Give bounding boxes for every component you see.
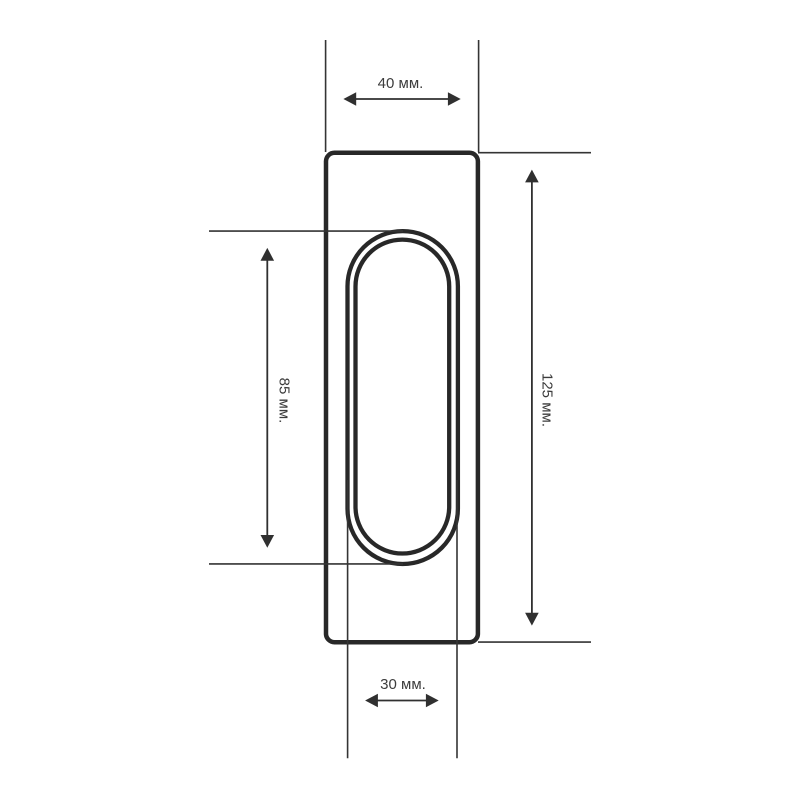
svg-text:125 мм.: 125 мм. <box>539 373 556 427</box>
svg-text:30 мм.: 30 мм. <box>380 676 426 693</box>
svg-text:85 мм.: 85 мм. <box>276 378 293 424</box>
svg-text:40 мм.: 40 мм. <box>378 75 424 92</box>
